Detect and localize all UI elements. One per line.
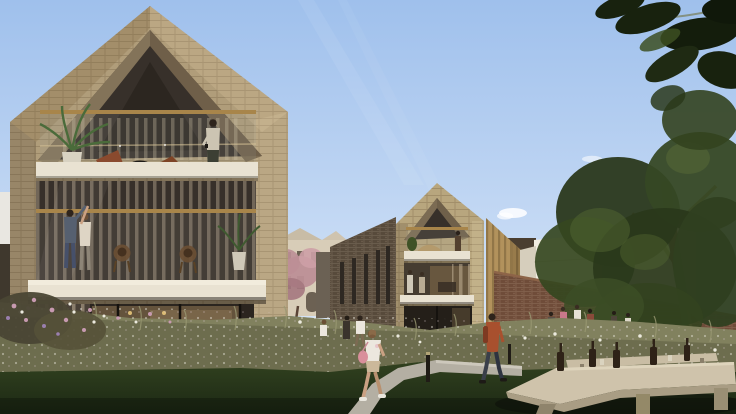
balcony-slab	[36, 162, 258, 178]
left-house-middle-floor	[28, 181, 266, 304]
architectural-rendering	[0, 0, 736, 414]
render-canvas	[0, 0, 736, 414]
middle-house-top-balcony	[404, 227, 470, 263]
interior-person	[419, 277, 425, 293]
middle-house-middle-floor	[400, 263, 474, 306]
backpack	[483, 326, 488, 343]
left-house-top-balcony	[36, 104, 258, 181]
balcony-rail	[40, 110, 256, 114]
balcony-person	[455, 236, 461, 252]
balcony-plant	[407, 237, 417, 251]
interior-person	[407, 275, 413, 293]
